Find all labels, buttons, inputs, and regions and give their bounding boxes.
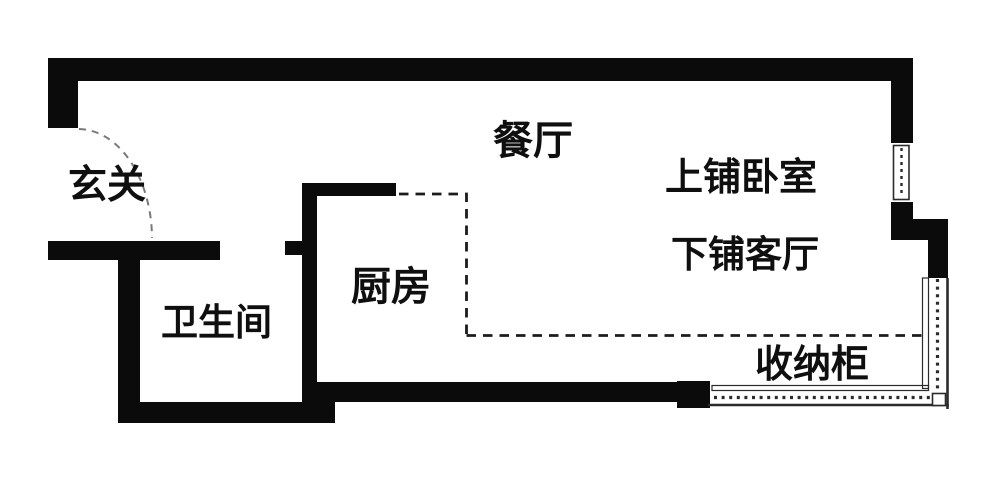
right-wall-upper xyxy=(891,58,913,143)
floor-plan-canvas xyxy=(0,0,1000,493)
room-label-dining: 餐厅 xyxy=(493,121,573,161)
bathroom-door-stub xyxy=(285,241,303,255)
right-wall-lower xyxy=(928,240,948,278)
right-wall-step xyxy=(891,202,948,240)
kitchen-top-wall xyxy=(302,183,396,196)
room-label-bunk-bedroom: 上铺卧室 xyxy=(665,159,817,197)
bathroom-bottom-wall xyxy=(118,402,335,423)
right-wall-window-icon xyxy=(891,143,913,202)
bathroom-left-wall xyxy=(118,241,140,423)
bay-window-corner-post xyxy=(933,394,946,406)
room-label-bunk-living: 下铺客厅 xyxy=(671,236,819,273)
floor-plan: 玄关 餐厅 厨房 卫生间 上铺卧室 下铺客厅 收纳柜 xyxy=(0,0,1000,493)
bay-window-inner-line-horizontal xyxy=(712,386,929,391)
room-label-bathroom: 卫生间 xyxy=(161,304,272,341)
entry-left-wall xyxy=(48,58,78,128)
room-label-entry: 玄关 xyxy=(68,166,146,205)
bottom-wall-end-block xyxy=(677,381,710,408)
top-wall xyxy=(48,58,913,81)
room-label-kitchen: 厨房 xyxy=(351,267,431,307)
bay-window-inner-line-vertical xyxy=(923,278,929,389)
room-label-storage-cabinet: 收纳柜 xyxy=(755,346,869,384)
kitchen-left-wall xyxy=(302,183,317,403)
main-bottom-wall xyxy=(315,382,695,402)
